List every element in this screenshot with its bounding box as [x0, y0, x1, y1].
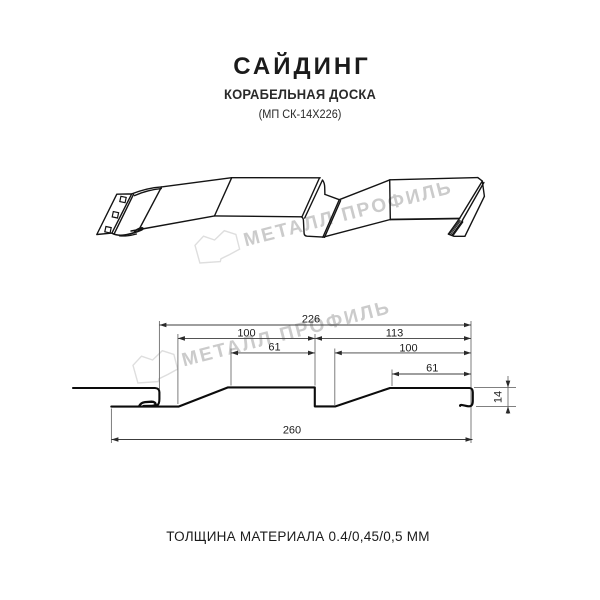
svg-text:226: 226 — [302, 314, 320, 326]
svg-text:100: 100 — [237, 328, 255, 340]
svg-text:14: 14 — [493, 391, 505, 403]
svg-text:260: 260 — [283, 425, 301, 437]
svg-text:61: 61 — [426, 363, 438, 375]
svg-text:МЕТАЛЛ ПРОФИЛЬ: МЕТАЛЛ ПРОФИЛЬ — [241, 177, 455, 251]
svg-text:МЕТАЛЛ ПРОФИЛЬ: МЕТАЛЛ ПРОФИЛЬ — [180, 297, 394, 371]
svg-text:61: 61 — [268, 342, 280, 354]
svg-text:113: 113 — [386, 327, 404, 339]
svg-text:100: 100 — [399, 342, 417, 354]
